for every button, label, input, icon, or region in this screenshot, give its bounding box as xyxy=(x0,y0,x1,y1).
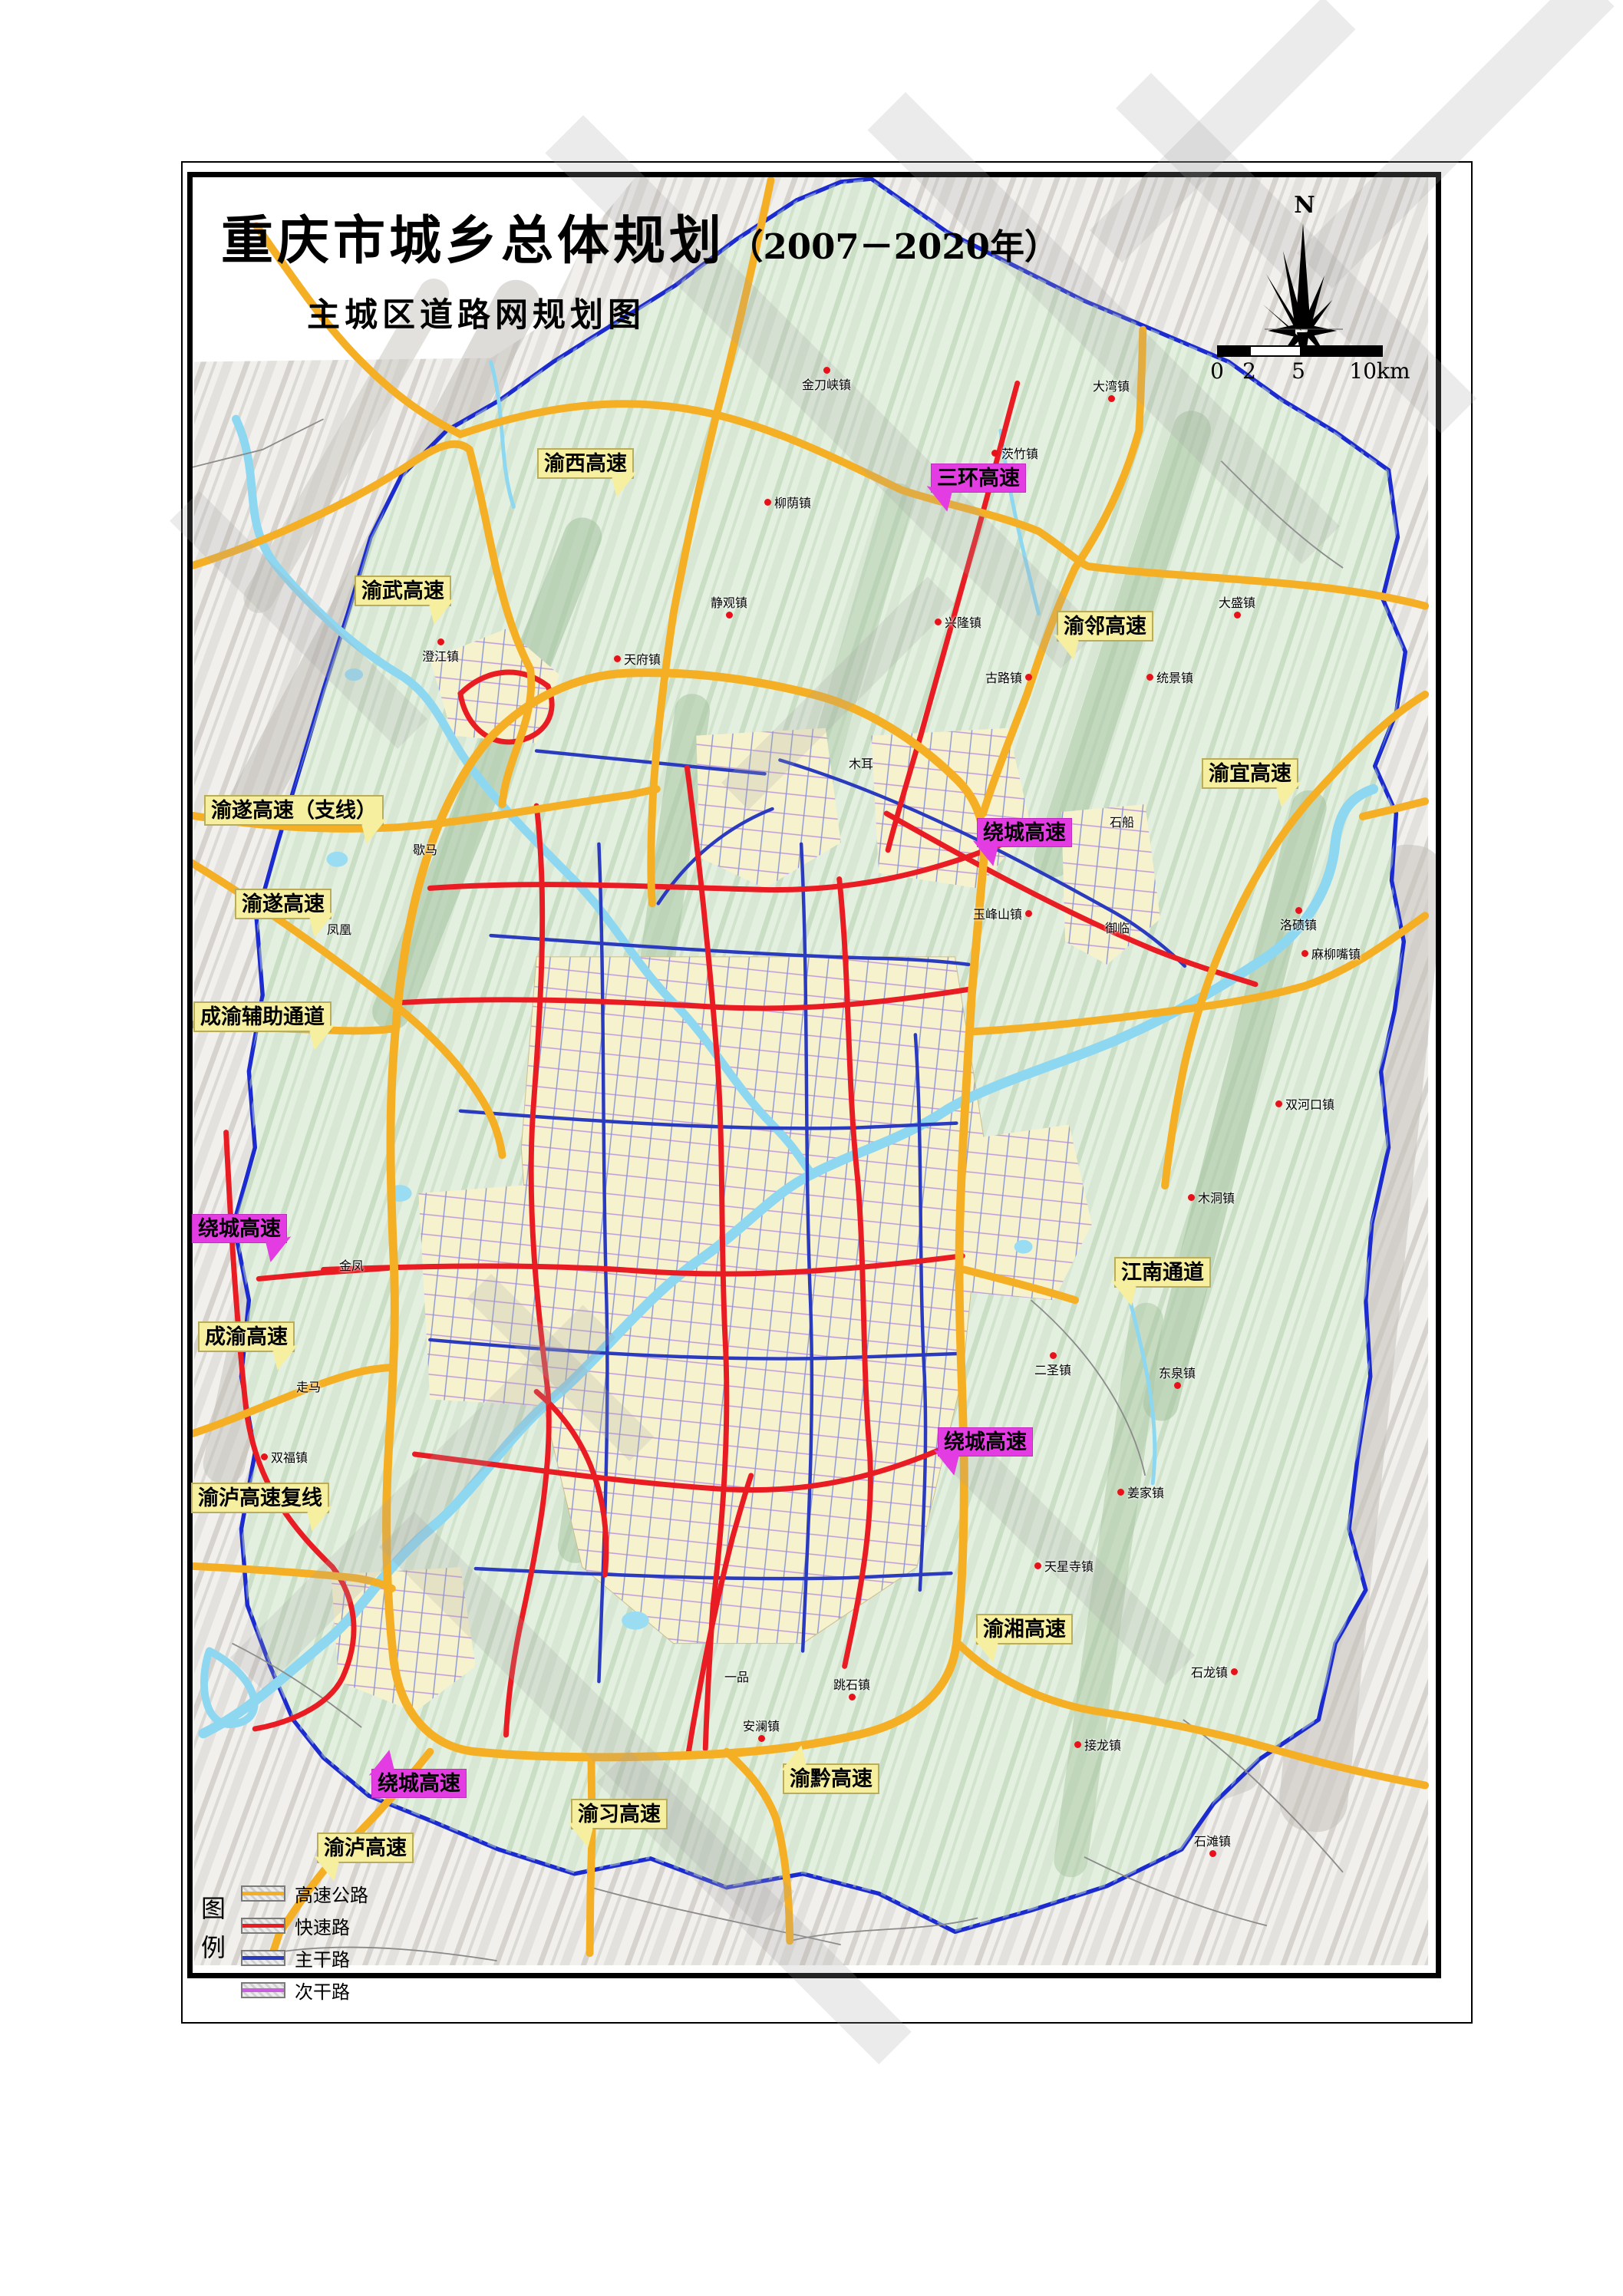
expressway-name-label: 成渝辅助通道 xyxy=(193,1001,332,1032)
town-dot-icon xyxy=(849,1694,856,1701)
town-dot-icon xyxy=(1231,1668,1238,1675)
town-label: 统景镇 xyxy=(1146,668,1193,686)
legend-swatch-icon xyxy=(241,1950,285,1966)
town-dot-icon xyxy=(437,638,444,645)
town-dot-icon xyxy=(1188,1194,1195,1201)
expressway-name-label: 渝邻高速 xyxy=(1057,611,1153,642)
town-label: 柳荫镇 xyxy=(764,493,811,511)
town-dot-icon xyxy=(614,655,621,662)
scale-tick-10km: 10km xyxy=(1349,358,1410,384)
expressway-name-label: 渝西高速 xyxy=(537,448,634,479)
town-label: 石滩镇 xyxy=(1194,1831,1231,1857)
terrain-map xyxy=(193,177,1436,1973)
town-dot-icon xyxy=(1108,395,1115,402)
scale-tick-0: 0 xyxy=(1210,358,1224,384)
scale-bar-segments xyxy=(1217,345,1383,357)
expressway-name-label: 渝遂高速 xyxy=(235,889,332,919)
town-dot-icon xyxy=(1117,1489,1124,1496)
town-label: 御临 xyxy=(1105,918,1130,936)
scale-bar: 0 2 5 10km xyxy=(1217,345,1383,384)
town-dot-icon xyxy=(1146,674,1153,681)
town-dot-icon xyxy=(758,1735,765,1742)
town-dot-icon xyxy=(935,619,942,625)
town-label: 麻柳嘴镇 xyxy=(1301,944,1361,962)
town-label: 二圣镇 xyxy=(1034,1352,1071,1378)
town-dot-icon xyxy=(726,612,733,619)
town-label: 歇马 xyxy=(413,840,437,858)
expressway-name-label: 成渝高速 xyxy=(198,1321,295,1352)
town-label: 走马 xyxy=(296,1377,321,1395)
town-dot-icon xyxy=(1295,907,1302,914)
map-title: 重庆市城乡总体规划 （2007－2020年） xyxy=(221,198,1059,274)
scale-tick-5: 5 xyxy=(1291,358,1305,384)
town-label: 姜家镇 xyxy=(1117,1483,1164,1501)
town-label: 双福镇 xyxy=(261,1447,308,1466)
town-label: 双河口镇 xyxy=(1275,1094,1334,1113)
town-label: 天府镇 xyxy=(614,649,661,668)
town-dot-icon xyxy=(1025,910,1032,917)
town-label: 东泉镇 xyxy=(1159,1363,1196,1389)
town-dot-icon xyxy=(1275,1100,1282,1107)
legend-item: 主干路 xyxy=(241,1945,368,1971)
town-dot-icon xyxy=(764,499,771,506)
title-year: （2007－2020年） xyxy=(728,226,1059,267)
town-dot-icon xyxy=(1234,612,1241,619)
legend-swatch-icon xyxy=(241,1885,285,1902)
title-main: 重庆市城乡总体规划 xyxy=(221,212,725,270)
town-dot-icon xyxy=(991,450,998,457)
town-label: 大湾镇 xyxy=(1093,376,1130,402)
town-label: 古路镇 xyxy=(985,668,1032,686)
town-dot-icon xyxy=(1025,674,1032,681)
town-label: 玉峰山镇 xyxy=(973,904,1032,922)
north-arrow: N xyxy=(1257,192,1352,352)
town-label: 天星寺镇 xyxy=(1034,1556,1094,1575)
town-label: 静观镇 xyxy=(711,592,747,619)
town-label: 兴隆镇 xyxy=(935,612,981,631)
ring-expressway-label: 绕城高速 xyxy=(371,1769,467,1798)
town-label: 石龙镇 xyxy=(1191,1662,1238,1681)
legend: 图 例 高速公路 快速路 主干路 次干路 xyxy=(201,1880,368,2004)
town-dot-icon xyxy=(1074,1741,1081,1748)
expressway-name-label: 渝黔高速 xyxy=(783,1763,879,1794)
town-dot-icon xyxy=(1209,1850,1216,1857)
town-label: 金凤 xyxy=(339,1255,364,1274)
map-page: 重庆市城乡总体规划 （2007－2020年） 主城区道路网规划图 N xyxy=(0,0,1623,2296)
legend-swatch-icon xyxy=(241,1918,285,1934)
town-dot-icon xyxy=(1174,1382,1181,1389)
map-subtitle: 主城区道路网规划图 xyxy=(307,289,645,336)
expressway-name-label: 渝宜高速 xyxy=(1202,758,1298,789)
legend-item: 快速路 xyxy=(241,1912,368,1939)
ring-expressway-label: 绕城高速 xyxy=(938,1427,1033,1456)
town-label: 木洞镇 xyxy=(1188,1188,1235,1206)
town-label: 石船 xyxy=(1110,812,1134,830)
town-dot-icon xyxy=(1050,1352,1057,1359)
expressway-name-label: 渝泸高速 xyxy=(317,1833,414,1863)
town-label: 洛碛镇 xyxy=(1280,907,1317,933)
town-label: 安澜镇 xyxy=(743,1716,780,1742)
town-label: 大盛镇 xyxy=(1219,592,1255,619)
town-label: 跳石镇 xyxy=(833,1674,870,1701)
legend-swatch-icon xyxy=(241,1982,285,1998)
town-dot-icon xyxy=(261,1453,268,1460)
town-dot-icon xyxy=(1034,1562,1041,1569)
legend-item: 高速公路 xyxy=(241,1880,368,1907)
town-label: 澄江镇 xyxy=(422,638,459,665)
ring-expressway-label: 绕城高速 xyxy=(192,1214,287,1243)
expressway-name-label: 渝遂高速（支线） xyxy=(204,795,384,826)
town-label: 木耳 xyxy=(849,754,873,772)
legend-rows: 高速公路 快速路 主干路 次干路 xyxy=(241,1880,368,2004)
map-canvas xyxy=(187,172,1441,1978)
expressway-name-label: 渝湘高速 xyxy=(976,1614,1073,1644)
town-dot-icon xyxy=(823,367,830,374)
expressway-name-label: 渝泸高速复线 xyxy=(191,1483,329,1513)
town-dot-icon xyxy=(1301,950,1308,957)
scale-tick-2: 2 xyxy=(1242,358,1256,384)
town-label: 一品 xyxy=(724,1667,749,1685)
expressway-name-label: 渝习高速 xyxy=(571,1799,668,1829)
town-label: 接龙镇 xyxy=(1074,1735,1121,1753)
expressway-name-label: 江南通道 xyxy=(1114,1257,1211,1288)
ring-expressway-label: 绕城高速 xyxy=(977,818,1072,847)
town-label: 茨竹镇 xyxy=(991,444,1038,462)
town-label: 金刀峡镇 xyxy=(802,367,851,393)
legend-item: 次干路 xyxy=(241,1977,368,2004)
compass-star-icon xyxy=(1257,214,1352,348)
legend-heading: 图 例 xyxy=(201,1889,226,2004)
ring-expressway-label: 三环高速 xyxy=(931,463,1026,493)
expressway-name-label: 渝武高速 xyxy=(355,576,451,606)
